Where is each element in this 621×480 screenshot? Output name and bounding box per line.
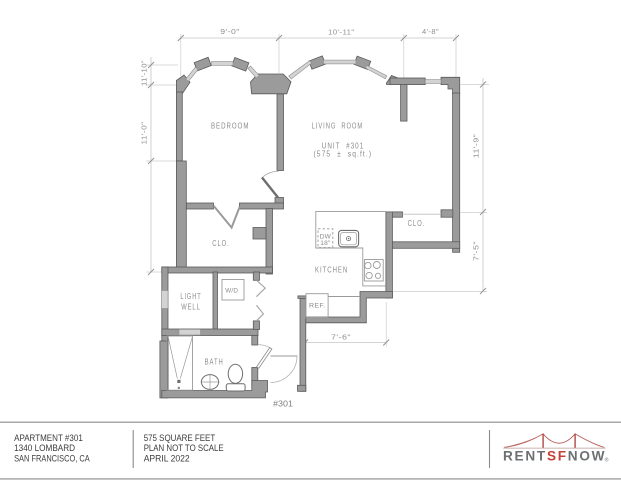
- svg-text:10'-11": 10'-11": [328, 28, 355, 37]
- svg-text:#301: #301: [273, 398, 293, 408]
- svg-text:9'-0": 9'-0": [220, 27, 240, 36]
- svg-text:(575 ± sq.ft.): (575 ± sq.ft.): [313, 148, 372, 158]
- svg-text:BEDROOM: BEDROOM: [211, 121, 250, 131]
- svg-text:4'-8": 4'-8": [422, 27, 439, 36]
- svg-text:CLO.: CLO.: [408, 218, 426, 228]
- svg-text:7'-5": 7'-5": [472, 241, 481, 261]
- svg-text:RENTSFNOW: RENTSFNOW: [503, 448, 605, 463]
- svg-text:18": 18": [320, 240, 331, 247]
- svg-text:SAN FRANCISCO, CA: SAN FRANCISCO, CA: [14, 453, 90, 463]
- svg-text:W/D: W/D: [225, 288, 238, 295]
- svg-text:11'-10": 11'-10": [140, 60, 149, 86]
- svg-text:11'-9": 11'-9": [472, 134, 481, 159]
- svg-text:LIGHT: LIGHT: [180, 291, 201, 301]
- svg-text:REF.: REF.: [309, 302, 325, 309]
- svg-text:PLAN NOT TO SCALE: PLAN NOT TO SCALE: [144, 443, 224, 453]
- svg-text:CLO.: CLO.: [212, 238, 229, 248]
- svg-text:LIVING ROOM: LIVING ROOM: [312, 121, 364, 131]
- svg-text:WELL: WELL: [181, 302, 201, 312]
- svg-text:APARTMENT #301: APARTMENT #301: [14, 433, 83, 443]
- svg-text:575 SQUARE FEET: 575 SQUARE FEET: [144, 433, 216, 443]
- svg-text:APRIL 2022: APRIL 2022: [144, 453, 190, 463]
- svg-text:KITCHEN: KITCHEN: [315, 265, 348, 275]
- svg-text:BATH: BATH: [205, 356, 224, 366]
- svg-text:®: ®: [605, 456, 609, 463]
- svg-text:1340 LOMBARD: 1340 LOMBARD: [14, 443, 75, 453]
- svg-text:7'-6": 7'-6": [331, 333, 351, 342]
- svg-text:11'-0": 11'-0": [140, 122, 149, 145]
